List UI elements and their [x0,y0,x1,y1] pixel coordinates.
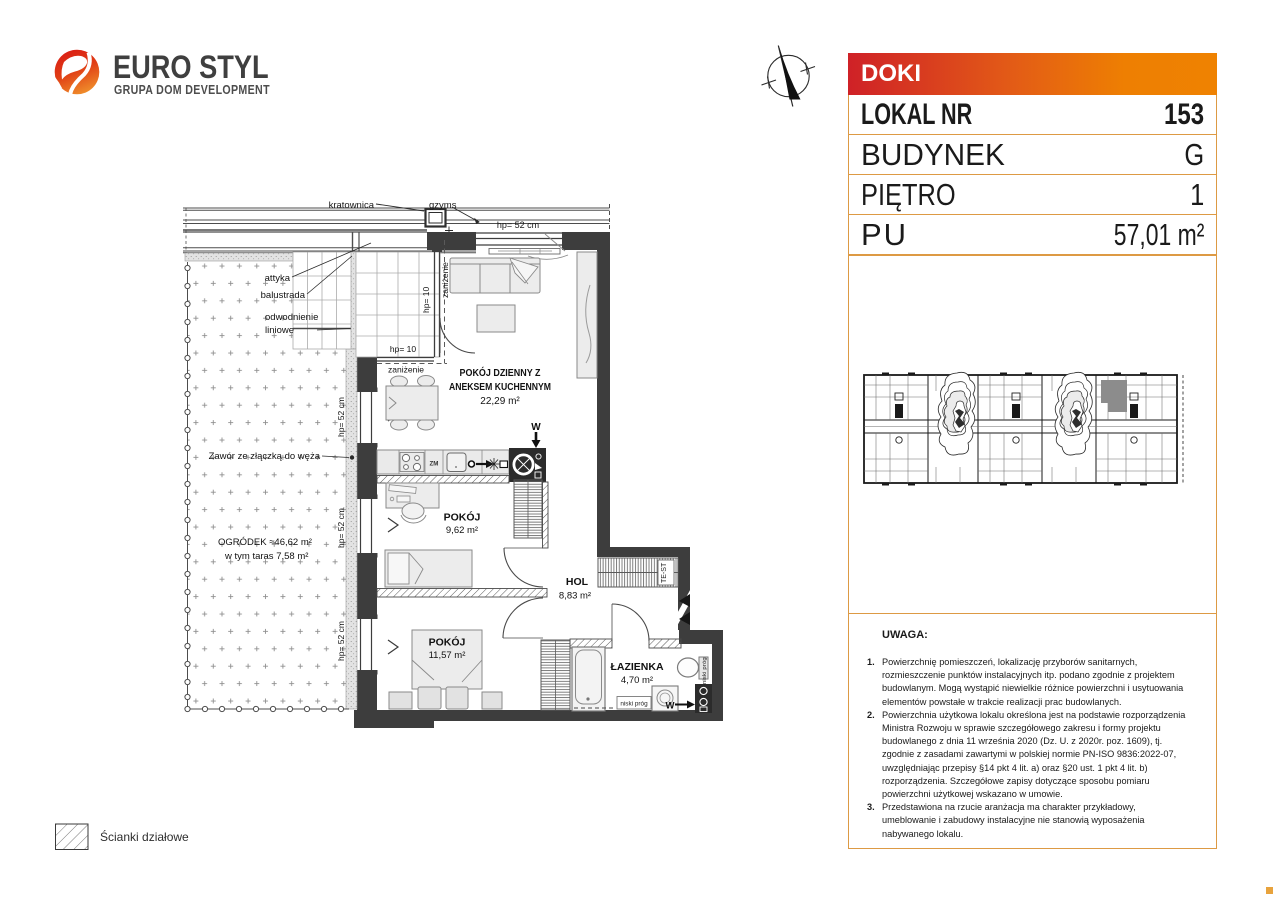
svg-text:W: W [531,422,541,433]
svg-text:TE-ST: TE-ST [661,562,668,583]
svg-text:HOL: HOL [566,576,589,588]
svg-text:ŁAZIENKA: ŁAZIENKA [610,661,663,673]
svg-text:OGRÓDEK ≈46,62 m²: OGRÓDEK ≈46,62 m² [218,537,312,548]
svg-text:niski próg: niski próg [620,701,648,708]
svg-text:attyka: attyka [265,273,291,284]
svg-text:POKÓJ: POKÓJ [429,636,466,649]
svg-text:zaniżenie: zaniżenie [440,262,450,298]
svg-text:POKÓJ DZIENNY Z: POKÓJ DZIENNY Z [460,366,541,379]
svg-text:22,29 m²: 22,29 m² [480,396,520,407]
svg-text:hp= 52 cm: hp= 52 cm [336,508,346,548]
svg-text:hp= 10: hp= 10 [421,286,431,313]
svg-text:hp= 52 cm: hp= 52 cm [336,621,346,661]
svg-text:zaniżenie: zaniżenie [388,365,424,375]
svg-text:9,62 m²: 9,62 m² [446,525,478,536]
svg-text:POKÓJ: POKÓJ [444,511,481,524]
svg-text:ANEKSEM KUCHENNYM: ANEKSEM KUCHENNYM [449,381,551,393]
svg-text:w tym taras 7,58 m²: w tym taras 7,58 m² [224,551,308,562]
svg-text:W: W [666,701,675,712]
svg-text:hp= 10: hp= 10 [390,344,417,354]
svg-text:ZM: ZM [430,461,439,468]
svg-text:balustrada: balustrada [261,290,306,301]
svg-text:liniowe: liniowe [265,325,294,336]
svg-text:niski próg: niski próg [702,657,708,684]
svg-text:kratownica: kratownica [329,200,375,211]
svg-text:hp= 52 cm: hp= 52 cm [336,397,346,437]
svg-text:4,70 m²: 4,70 m² [621,675,653,686]
svg-text:gzyms: gzyms [429,200,457,211]
svg-text:Zawór ze złączką do węża: Zawór ze złączką do węża [209,451,321,462]
svg-text:11,57 m²: 11,57 m² [429,650,466,661]
svg-text:hp= 52 cm: hp= 52 cm [497,220,539,230]
svg-text:odwodnienie: odwodnienie [265,312,318,323]
svg-text:8,83 m²: 8,83 m² [559,591,591,602]
